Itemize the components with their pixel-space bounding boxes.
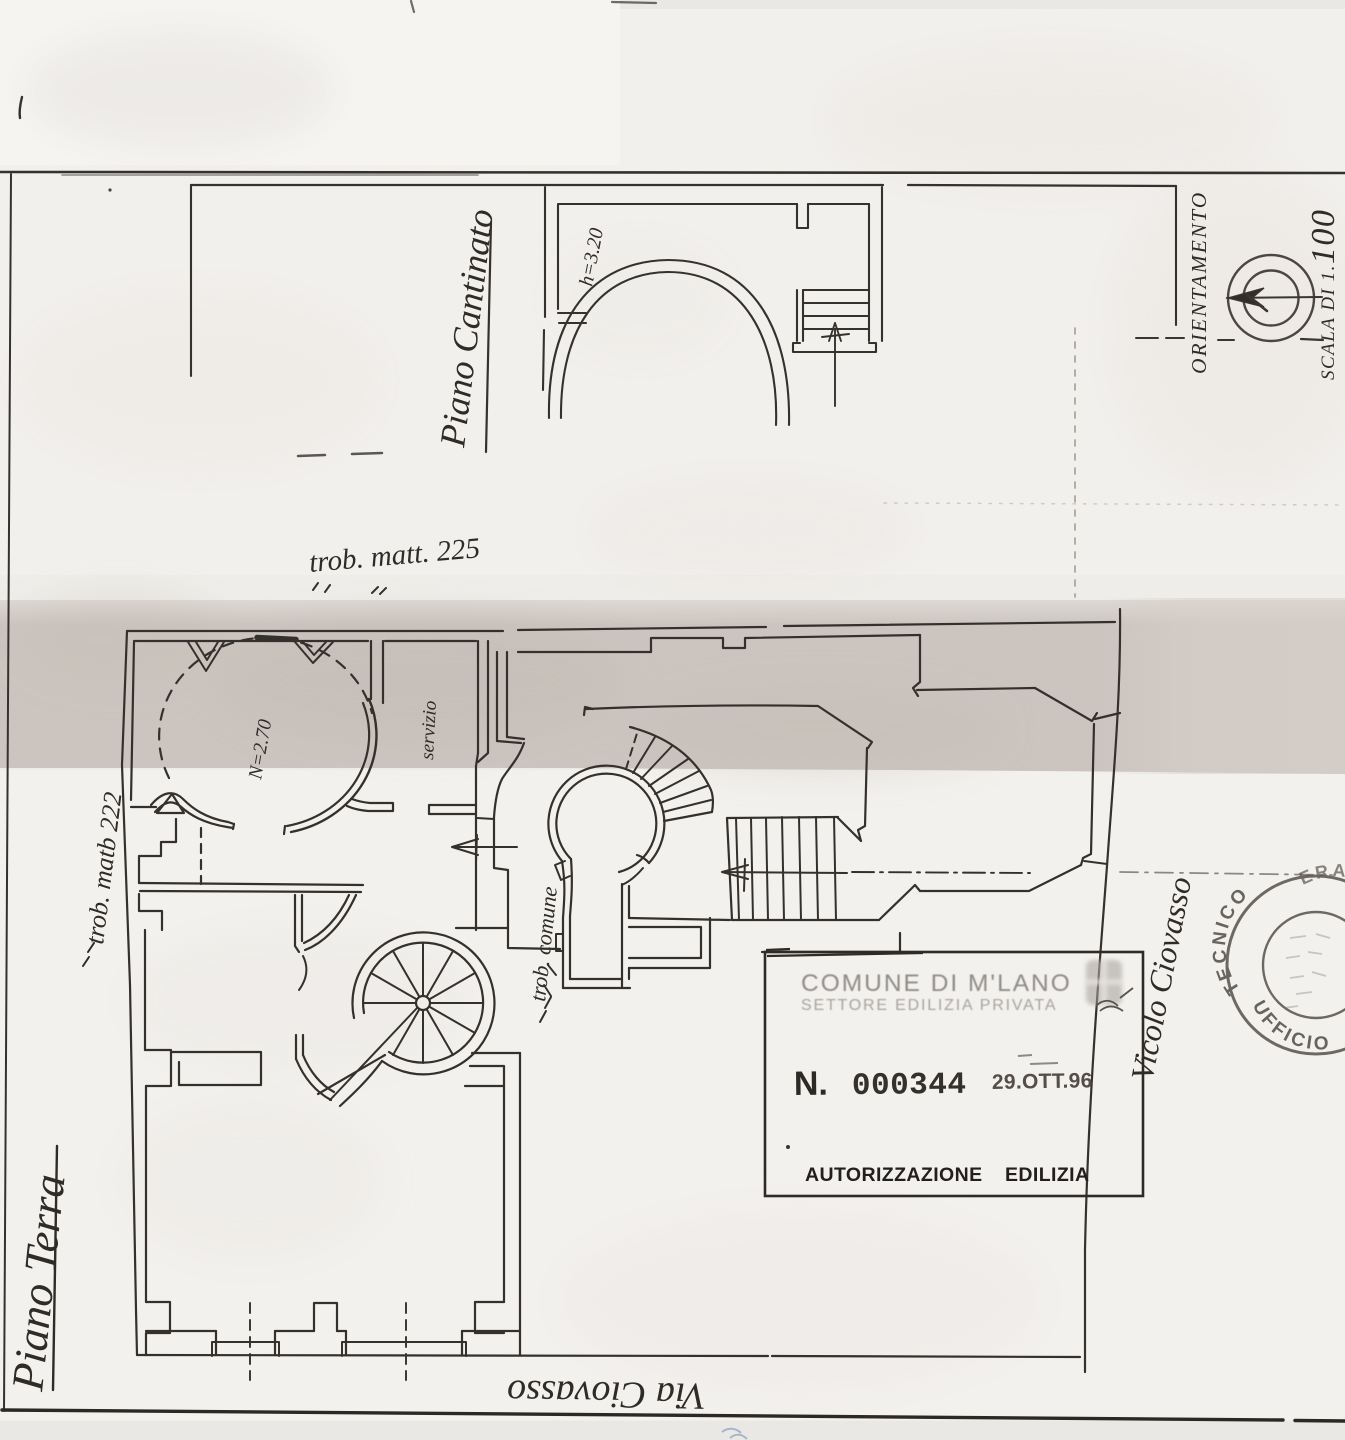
svg-text:Via Ciovasso: Via Ciovasso bbox=[507, 1372, 706, 1417]
svg-text:AUTORIZZAZIONE: AUTORIZZAZIONE bbox=[805, 1164, 982, 1186]
svg-text:000344: 000344 bbox=[852, 1068, 967, 1104]
svg-text:SETTORE EDILIZIA PRIVATA: SETTORE EDILIZIA PRIVATA bbox=[801, 997, 1057, 1014]
svg-text:servizio: servizio bbox=[417, 700, 441, 760]
svg-text:EDILIZIA: EDILIZIA bbox=[1005, 1164, 1089, 1186]
svg-text:ORIENTAMENTO: ORIENTAMENTO bbox=[1187, 191, 1211, 374]
svg-text:29.OTT.96: 29.OTT.96 bbox=[992, 1069, 1093, 1094]
svg-text:N.: N. bbox=[794, 1065, 828, 1103]
svg-text:COMUNE DI M'LANO: COMUNE DI M'LANO bbox=[801, 970, 1072, 997]
